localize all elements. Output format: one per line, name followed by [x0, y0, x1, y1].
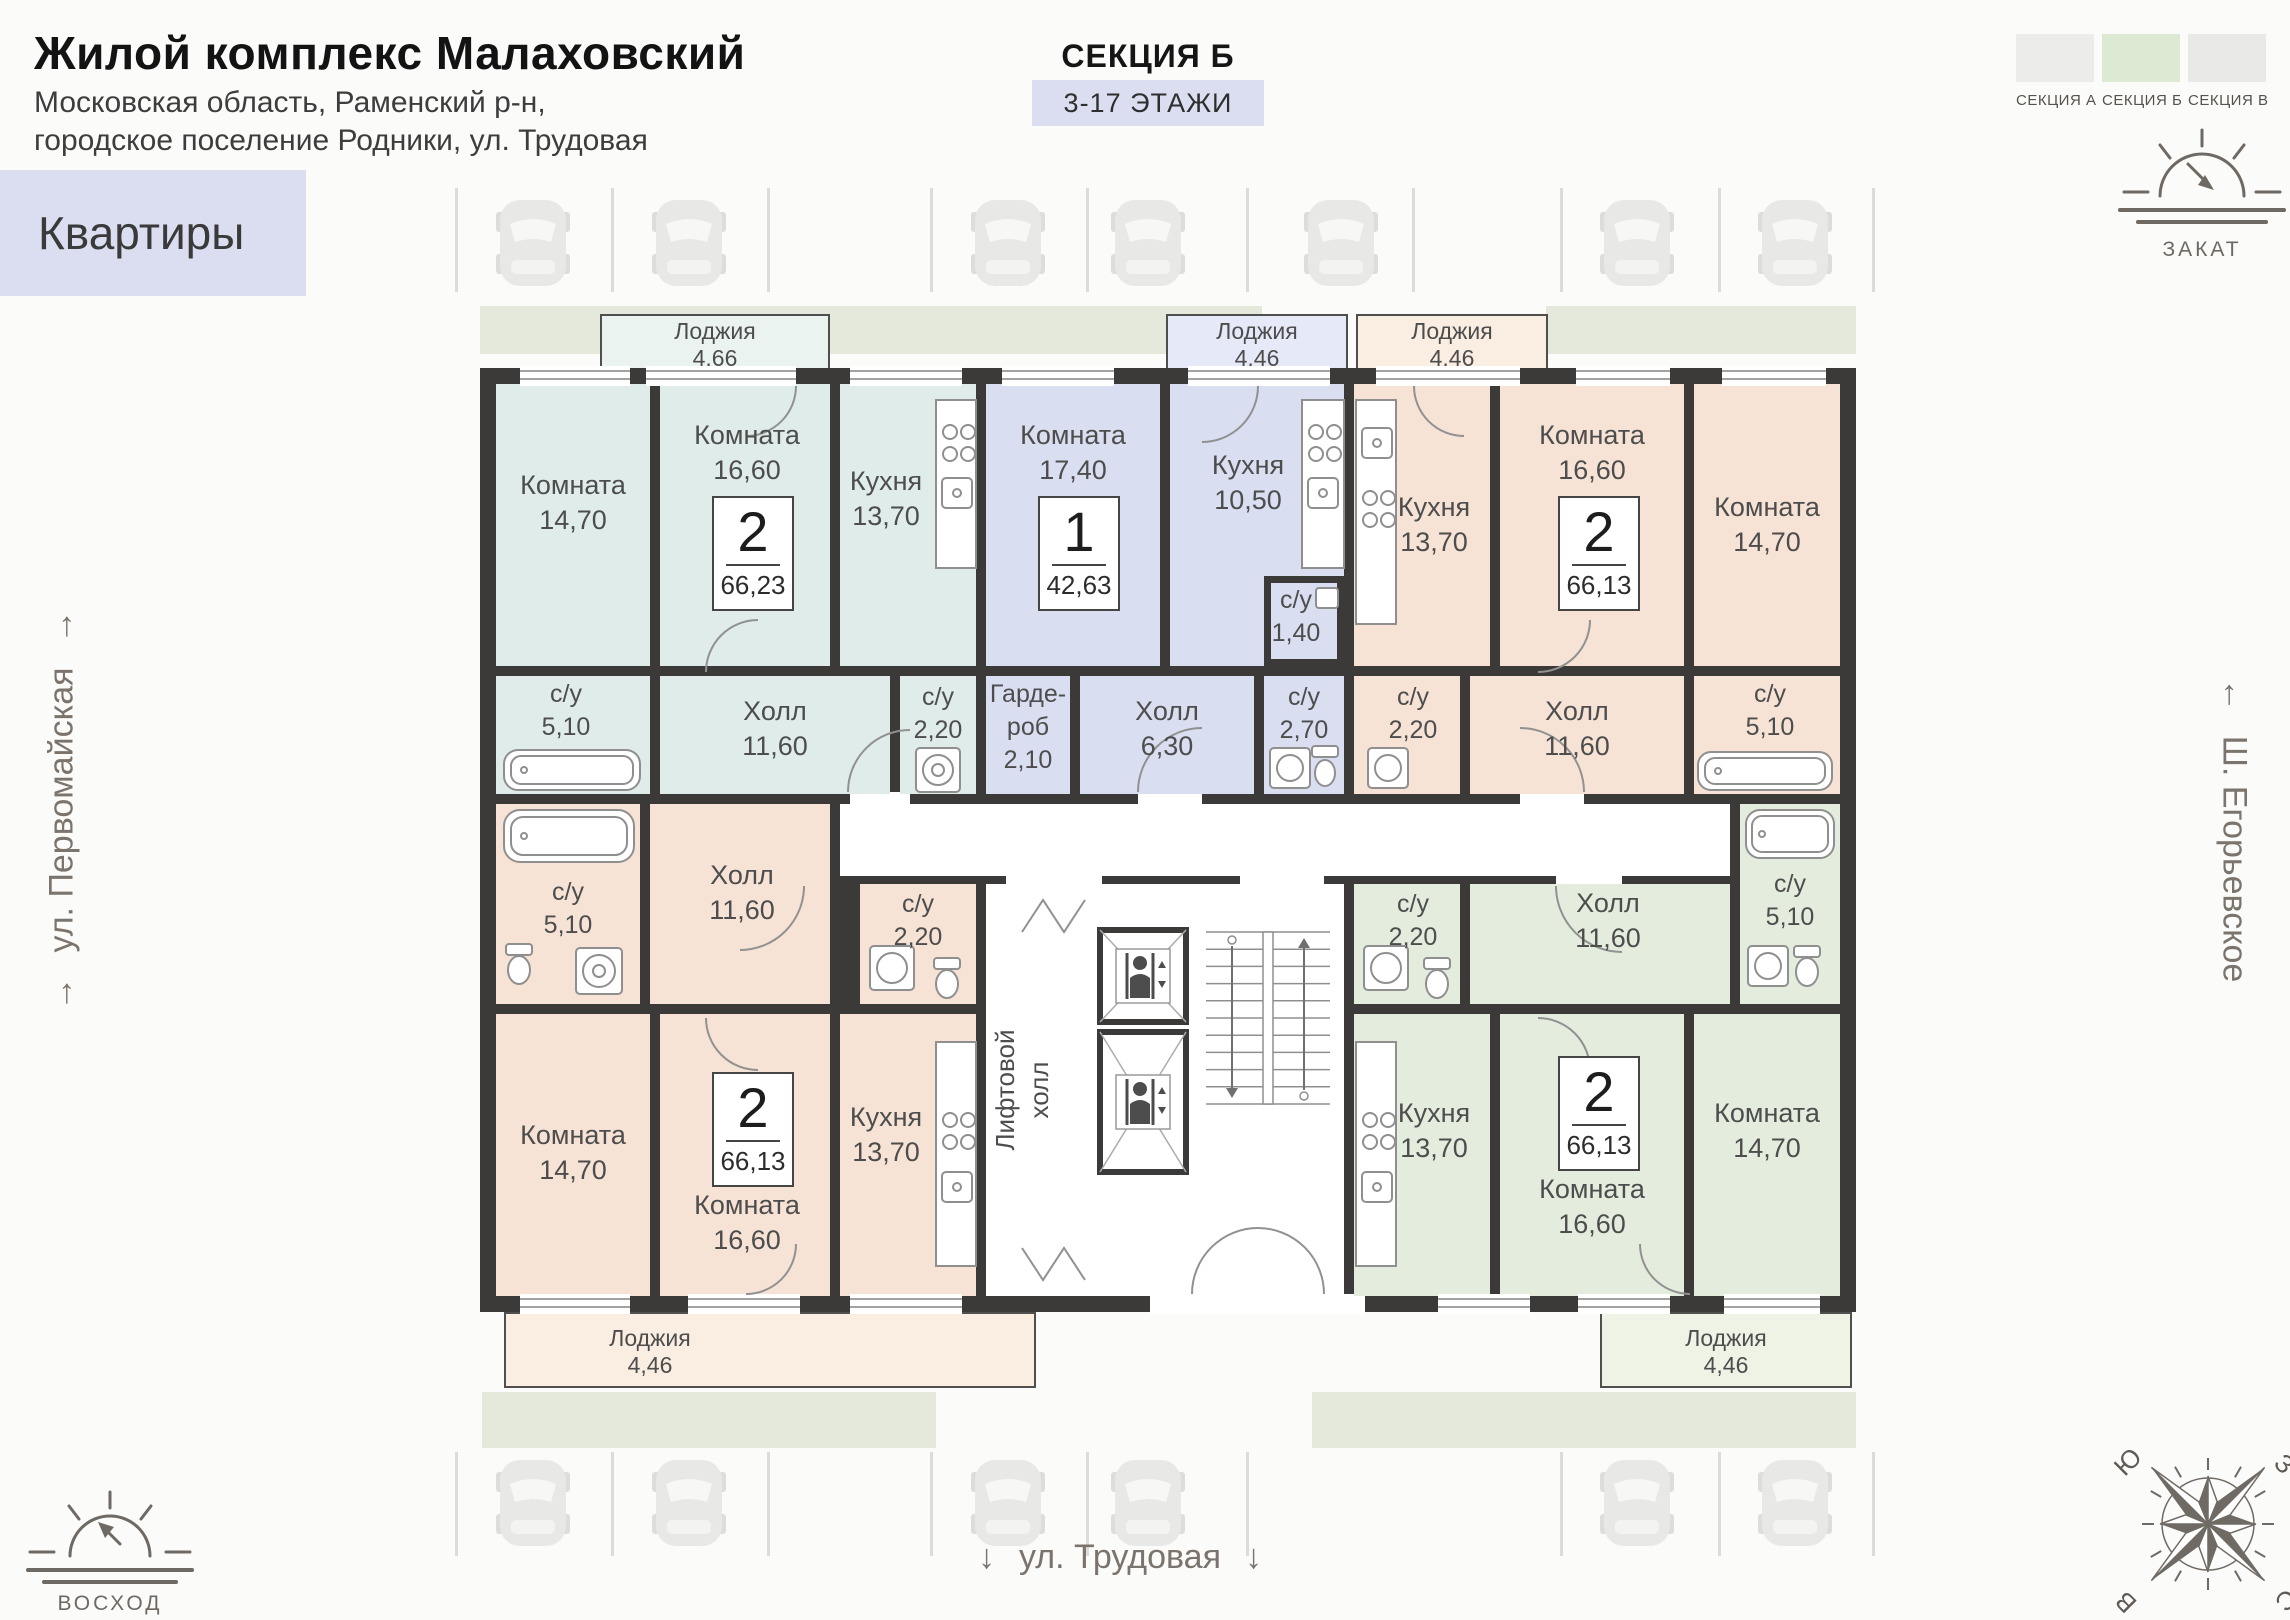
section-swatch-label-b: СЕКЦИЯ Б: [2102, 92, 2180, 109]
compass-letter-north: С: [2269, 1583, 2290, 1617]
parking-car-icon: [496, 1460, 570, 1546]
badge-area: 66,23: [714, 570, 792, 601]
street-label-bottom: ↓ул. Трудовая↓: [966, 1538, 1274, 1577]
window: [1438, 1294, 1530, 1314]
corridor: [840, 804, 1730, 876]
room-label: Комната16,60: [694, 418, 800, 488]
badge-divider: [1052, 564, 1106, 566]
badge-area: 42,63: [1040, 570, 1118, 601]
room-label: Холл11,60: [1544, 694, 1610, 764]
window: [1724, 1294, 1820, 1314]
room-label: с/у5,10: [544, 876, 593, 942]
parking-divider: [611, 188, 614, 292]
badge-room-count: 2: [714, 502, 792, 562]
section-swatch-v[interactable]: [2188, 34, 2266, 82]
up-arrow-icon: →: [43, 977, 81, 1011]
lawn-strip: [482, 1392, 936, 1448]
window: [1578, 1294, 1670, 1314]
badge-room-count: 2: [1560, 502, 1638, 562]
loggia-label: Лоджия4,46: [1216, 318, 1298, 372]
parking-car-icon: [1600, 200, 1674, 286]
section-title: СЕКЦИЯ Б: [1061, 38, 1234, 75]
window: [1376, 366, 1520, 386]
parking-car-icon: [1600, 1460, 1674, 1546]
room-label: Комната14,70: [1714, 1096, 1820, 1166]
sunrise-icon: [18, 1478, 202, 1592]
door-opening: [850, 792, 910, 806]
parking-divider: [767, 188, 770, 292]
window: [850, 1294, 962, 1314]
parking-car-icon: [1758, 1460, 1832, 1546]
parking-divider: [1086, 188, 1089, 292]
loggia: [504, 1312, 1036, 1388]
window: [850, 366, 962, 386]
room-label: с/у2,20: [914, 681, 963, 747]
lawn-strip: [480, 306, 1262, 354]
parking-car-icon: [496, 200, 570, 286]
apartment-badge[interactable]: 266,13: [712, 1072, 794, 1187]
badge-room-count: 2: [714, 1078, 792, 1138]
room-label: Холл11,60: [1575, 886, 1641, 956]
badge-divider: [726, 1140, 780, 1142]
parking-divider: [1718, 188, 1721, 292]
room-label: Комната14,70: [520, 468, 626, 538]
street-label-left: →ул. Первомайская→: [43, 597, 82, 1022]
window: [520, 366, 630, 386]
room-label: Гарде-роб2,10: [990, 678, 1066, 777]
parking-car-icon: [1304, 200, 1378, 286]
badge-room-count: 2: [1560, 1062, 1638, 1122]
page-address-line2: городское поселение Родники, ул. Трудова…: [34, 124, 648, 158]
door-opening: [1520, 792, 1584, 806]
parking-divider: [611, 1452, 614, 1556]
badge-divider: [1572, 564, 1626, 566]
apartment-badge[interactable]: 266,13: [1558, 1056, 1640, 1171]
parking-car-icon: [652, 200, 726, 286]
parking-divider: [930, 1452, 933, 1556]
room-label: Комната14,70: [1714, 490, 1820, 560]
loggia-label: Лоджия4,46: [1411, 318, 1493, 372]
badge-divider: [726, 564, 780, 566]
room-label: Комната14,70: [520, 1118, 626, 1188]
parking-car-icon: [652, 1460, 726, 1546]
room-label: Комната16,60: [1539, 418, 1645, 488]
room-label: Холл6,30: [1135, 694, 1199, 764]
elevator-hall-label: Лифтовойхолл: [988, 1030, 1056, 1151]
room-label: с/у5,10: [1766, 868, 1815, 934]
compass-icon: Ю З В С: [2110, 1420, 2290, 1620]
lawn-strip: [1312, 1392, 1856, 1448]
door-opening: [1150, 1294, 1365, 1314]
down-arrow-icon: ↓: [1245, 1538, 1262, 1576]
room-label: с/у5,10: [542, 678, 591, 744]
room-label: Комната16,60: [1539, 1172, 1645, 1242]
parking-divider: [1872, 188, 1875, 292]
badge-area: 66,13: [1560, 1130, 1638, 1161]
room-label: с/у5,10: [1746, 678, 1795, 744]
window: [1188, 366, 1330, 386]
window: [1576, 366, 1670, 386]
badge-divider: [1572, 1124, 1626, 1126]
parking-divider: [1246, 188, 1249, 292]
compass-letter-south: Ю: [2110, 1442, 2148, 1482]
page: Лоджия4,66Лоджия4,46Лоджия4,46Лоджия4,46…: [0, 0, 2290, 1620]
room-label: Кухня13,70: [1398, 490, 1470, 560]
floor-plan: Лоджия4,66Лоджия4,46Лоджия4,46Лоджия4,46…: [0, 0, 2290, 1620]
apartment-badge[interactable]: 266,23: [712, 496, 794, 611]
parking-car-icon: [1111, 1460, 1185, 1546]
parking-divider: [1560, 1452, 1563, 1556]
street-label-right: ←Ш. Егорьевское: [2215, 666, 2254, 995]
apartment-badge[interactable]: 266,13: [1558, 496, 1640, 611]
section-swatch-label-a: СЕКЦИЯ А: [2016, 92, 2094, 109]
door-opening: [1240, 872, 1324, 886]
parking-divider: [1412, 188, 1415, 292]
parking-divider: [930, 188, 933, 292]
section-swatch-a[interactable]: [2016, 34, 2094, 82]
sunset-label: ЗАКАТ: [2110, 238, 2290, 262]
window: [1002, 366, 1114, 386]
badge-area: 66,13: [1560, 570, 1638, 601]
up-arrow-icon: ←: [2216, 678, 2254, 712]
badge-room-count: 1: [1040, 502, 1118, 562]
window: [520, 1294, 630, 1314]
room-label: Кухня13,70: [850, 1100, 922, 1170]
section-swatch-label-v: СЕКЦИЯ В: [2188, 92, 2266, 109]
down-arrow-icon: ↓: [978, 1538, 995, 1576]
badge-area: 66,13: [714, 1146, 792, 1177]
parking-divider: [455, 188, 458, 292]
parking-divider: [1560, 188, 1563, 292]
room-label: с/у2,70: [1280, 681, 1329, 747]
compass-letter-west: З: [2268, 1447, 2290, 1479]
page-title: Жилой комплекс Малаховский: [34, 26, 745, 80]
sunrise-label: ВОСХОД: [18, 1592, 202, 1616]
door-opening: [1138, 792, 1202, 806]
room-label: Кухня10,50: [1212, 448, 1284, 518]
parking-divider: [1872, 1452, 1875, 1556]
section-swatch-b[interactable]: [2102, 34, 2180, 82]
window: [1722, 366, 1826, 386]
window: [646, 366, 796, 386]
parking-car-icon: [971, 1460, 1045, 1546]
room-label: Кухня13,70: [1398, 1096, 1470, 1166]
room-label: Холл11,60: [709, 858, 775, 928]
apartment-badge[interactable]: 142,63: [1038, 496, 1120, 611]
parking-divider: [455, 1452, 458, 1556]
parking-divider: [767, 1452, 770, 1556]
room-label: Комната16,60: [694, 1188, 800, 1258]
parking-car-icon: [1111, 200, 1185, 286]
lawn-strip: [1546, 306, 1856, 354]
parking-car-icon: [971, 200, 1045, 286]
page-address-line1: Московская область, Раменский р-н,: [34, 86, 546, 120]
loggia-label: Лоджия4,46: [1685, 1325, 1767, 1379]
door-opening: [1006, 872, 1102, 886]
room-label: Холл11,60: [742, 694, 808, 764]
room-label: Комната17,40: [1020, 418, 1126, 488]
apartments-label: Квартиры: [0, 170, 306, 296]
parking-divider: [1718, 1452, 1721, 1556]
room-label: с/у2,20: [1389, 888, 1438, 954]
parking-car-icon: [1758, 200, 1832, 286]
loggia-label: Лоджия4,66: [674, 318, 756, 372]
room-label: с/у1,40: [1272, 584, 1321, 650]
room-label: с/у2,20: [894, 888, 943, 954]
section-floors-badge: 3-17 ЭТАЖИ: [1032, 80, 1264, 126]
room-label: Кухня13,70: [850, 464, 922, 534]
compass-letter-east: В: [2110, 1586, 2142, 1619]
loggia-label: Лоджия4,46: [609, 1325, 691, 1379]
sunset-icon: [2110, 118, 2290, 232]
room-label: с/у2,20: [1389, 681, 1438, 747]
window: [688, 1294, 800, 1314]
up-arrow-icon: →: [43, 609, 81, 643]
